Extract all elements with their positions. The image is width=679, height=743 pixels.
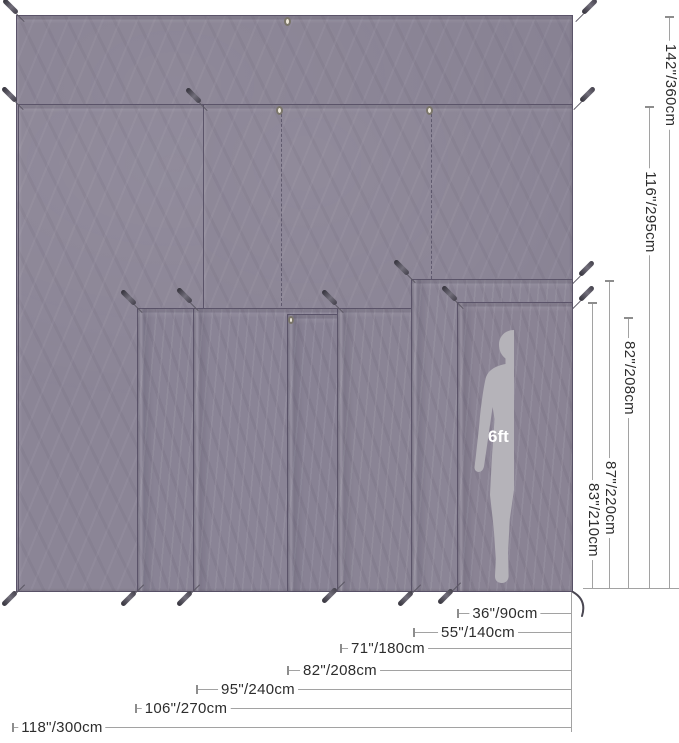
height-dim-label: 87"/220cm (602, 458, 618, 538)
tent-stake-icon (397, 590, 414, 607)
tarp-seam (281, 109, 282, 306)
height-dim-116in: 116"/295cm (649, 106, 650, 588)
height-dim-label: 82"/208cm (621, 338, 637, 418)
width-dim-label: 82"/208cm (300, 663, 380, 679)
width-dim-71in: 71"/180cm (340, 648, 571, 649)
width-dim-95in: 95"/240cm (196, 689, 571, 690)
grommet-icon (288, 316, 294, 324)
width-dim-106in: 106"/270cm (135, 708, 571, 709)
tent-stake-icon (578, 260, 595, 277)
tent-stake-icon (581, 0, 598, 15)
width-dim-118in: 118"/300cm (12, 727, 571, 728)
width-dim-55in: 55"/140cm (413, 632, 571, 633)
width-dim-label: 118"/300cm (18, 720, 105, 736)
width-dim-label: 55"/140cm (438, 625, 518, 641)
corner-cord-icon (571, 591, 591, 619)
scale-label: 6ft (488, 427, 509, 447)
height-dim-baseline (583, 588, 679, 589)
width-dim-label: 95"/240cm (218, 682, 298, 698)
tarp-size-diagram: 6ft 142"/360cm 116"/295cm 82"/208cm 87"/… (0, 0, 679, 743)
tent-stake-icon (176, 590, 193, 607)
height-dim-83in: 83"/210cm (592, 302, 593, 588)
height-dim-82in: 82"/208cm (628, 317, 629, 588)
tent-stake-icon (578, 285, 595, 302)
height-dim-label: 83"/210cm (585, 480, 601, 560)
height-dim-87in: 87"/220cm (609, 280, 610, 588)
height-dim-142in: 142"/360cm (669, 16, 670, 588)
width-dim-baseline (571, 592, 572, 732)
width-dim-label: 36"/90cm (469, 606, 540, 622)
width-dim-82in: 82"/208cm (287, 670, 571, 671)
width-dim-label: 106"/270cm (142, 701, 231, 717)
grommet-icon (276, 106, 283, 115)
human-silhouette: 6ft (464, 327, 564, 585)
tarp-seam (431, 109, 432, 279)
height-dim-label: 142"/360cm (662, 41, 678, 130)
tent-stake-icon (579, 86, 596, 103)
tent-stake-icon (2, 0, 19, 15)
human-silhouette-graphic (464, 327, 564, 585)
width-dim-36in: 36"/90cm (457, 613, 571, 614)
height-dim-label: 116"/295cm (642, 168, 658, 255)
width-dim-label: 71"/180cm (348, 641, 428, 657)
tent-stake-icon (1, 590, 18, 607)
grommet-icon (284, 17, 291, 26)
tent-stake-icon (120, 590, 137, 607)
grommet-icon (426, 106, 433, 115)
